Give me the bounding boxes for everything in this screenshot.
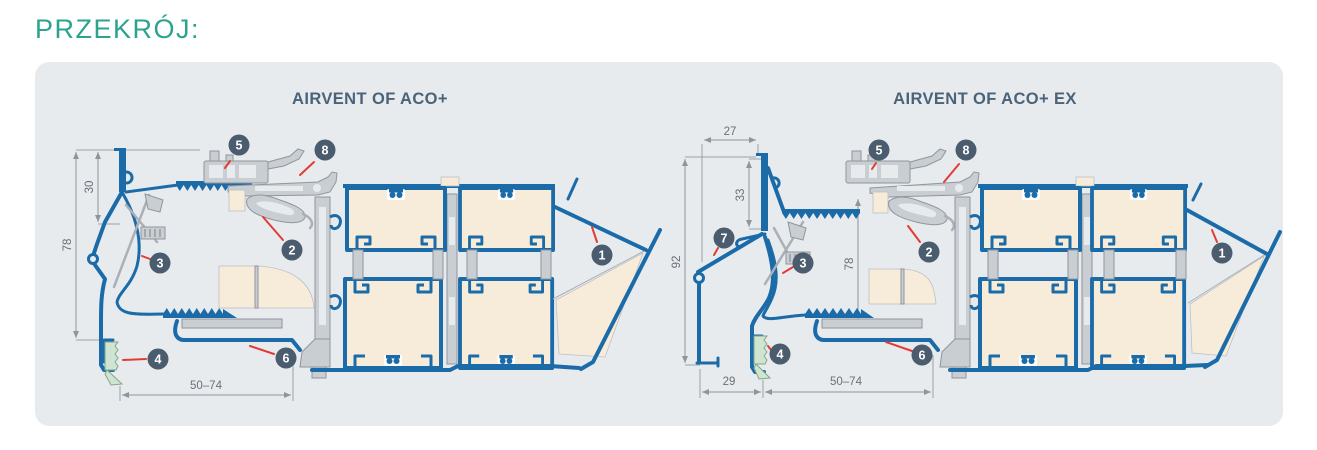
louvre-flap (1187, 184, 1280, 367)
svg-text:2: 2 (289, 244, 296, 258)
svg-text:1: 1 (599, 249, 606, 263)
svg-text:7: 7 (721, 232, 728, 246)
diagram-panel: AIRVENT OF ACO+ AIRVENT OF ACO+ EX 78 30… (35, 62, 1283, 426)
sill-gasket (105, 342, 122, 385)
vent-core (312, 177, 579, 370)
dim-label-30: 30 (84, 181, 96, 194)
insulation-wedge (219, 266, 314, 308)
dim-label-78: 78 (844, 258, 856, 271)
insulation-wedge (869, 269, 936, 304)
svg-text:1: 1 (1219, 247, 1226, 261)
dimension-sill-width-29: 29 (700, 369, 761, 398)
dimension-bottom-width-50-74: 50–74 (763, 355, 933, 398)
figure-title-aco-plus-ex: AIRVENT OF ACO+ EX (670, 90, 1300, 109)
callout-badge-3: 3 (793, 253, 814, 274)
cross-section-aco-plus-ex: 92 27 33 78 29 50–74 (670, 122, 1300, 422)
dim-label-50-74: 50–74 (190, 380, 223, 392)
dim-label-27: 27 (724, 126, 737, 138)
dim-label-29: 29 (723, 376, 736, 388)
callout-badge-6: 6 (276, 348, 297, 369)
callout-badge-3: 3 (150, 253, 171, 274)
callout-badge-8: 8 (315, 140, 336, 161)
louvre-flap (553, 179, 660, 369)
svg-text:8: 8 (963, 144, 970, 158)
dimension-top-inset-30: 30 (84, 152, 120, 224)
callout-badge-6: 6 (912, 345, 933, 366)
svg-text:4: 4 (777, 348, 784, 362)
callout-badge-5: 5 (229, 135, 250, 156)
figure-title-aco-plus: AIRVENT OF ACO+ (60, 90, 680, 109)
dimension-top-inset-33: 33 (735, 159, 764, 229)
callout-badge-5: 5 (869, 140, 890, 161)
svg-text:5: 5 (236, 139, 243, 153)
callout-badge-4: 4 (770, 344, 791, 365)
cross-section-aco-plus: 78 30 50–74 (60, 122, 680, 422)
dim-label-78: 78 (62, 239, 74, 252)
svg-text:2: 2 (926, 246, 933, 260)
svg-text:4: 4 (155, 353, 162, 367)
callout-badge-4: 4 (148, 349, 169, 370)
callout-badge-1: 1 (592, 245, 613, 266)
mounting-bracket (204, 149, 304, 183)
svg-text:8: 8 (322, 144, 329, 158)
callout-badge-2: 2 (282, 240, 303, 261)
page-title: PRZEKRÓJ: (35, 14, 200, 45)
svg-text:6: 6 (919, 349, 926, 363)
callout-badge-7: 7 (714, 228, 735, 249)
mounting-bracket (846, 149, 946, 183)
dim-label-33: 33 (735, 189, 747, 202)
dim-label-50-74: 50–74 (830, 376, 863, 388)
central-post (940, 197, 980, 378)
vent-core (950, 177, 1207, 370)
dim-label-92: 92 (671, 256, 683, 269)
svg-text:3: 3 (157, 257, 164, 271)
callout-badge-1: 1 (1212, 243, 1233, 264)
svg-text:3: 3 (800, 257, 807, 271)
callout-badge-2: 2 (919, 242, 940, 263)
pivot-lever (873, 192, 954, 230)
callout-badge-8: 8 (956, 140, 977, 161)
sill-gasket (754, 336, 770, 379)
svg-text:5: 5 (876, 144, 883, 158)
svg-text:6: 6 (283, 352, 290, 366)
bottom-tray (175, 319, 300, 350)
